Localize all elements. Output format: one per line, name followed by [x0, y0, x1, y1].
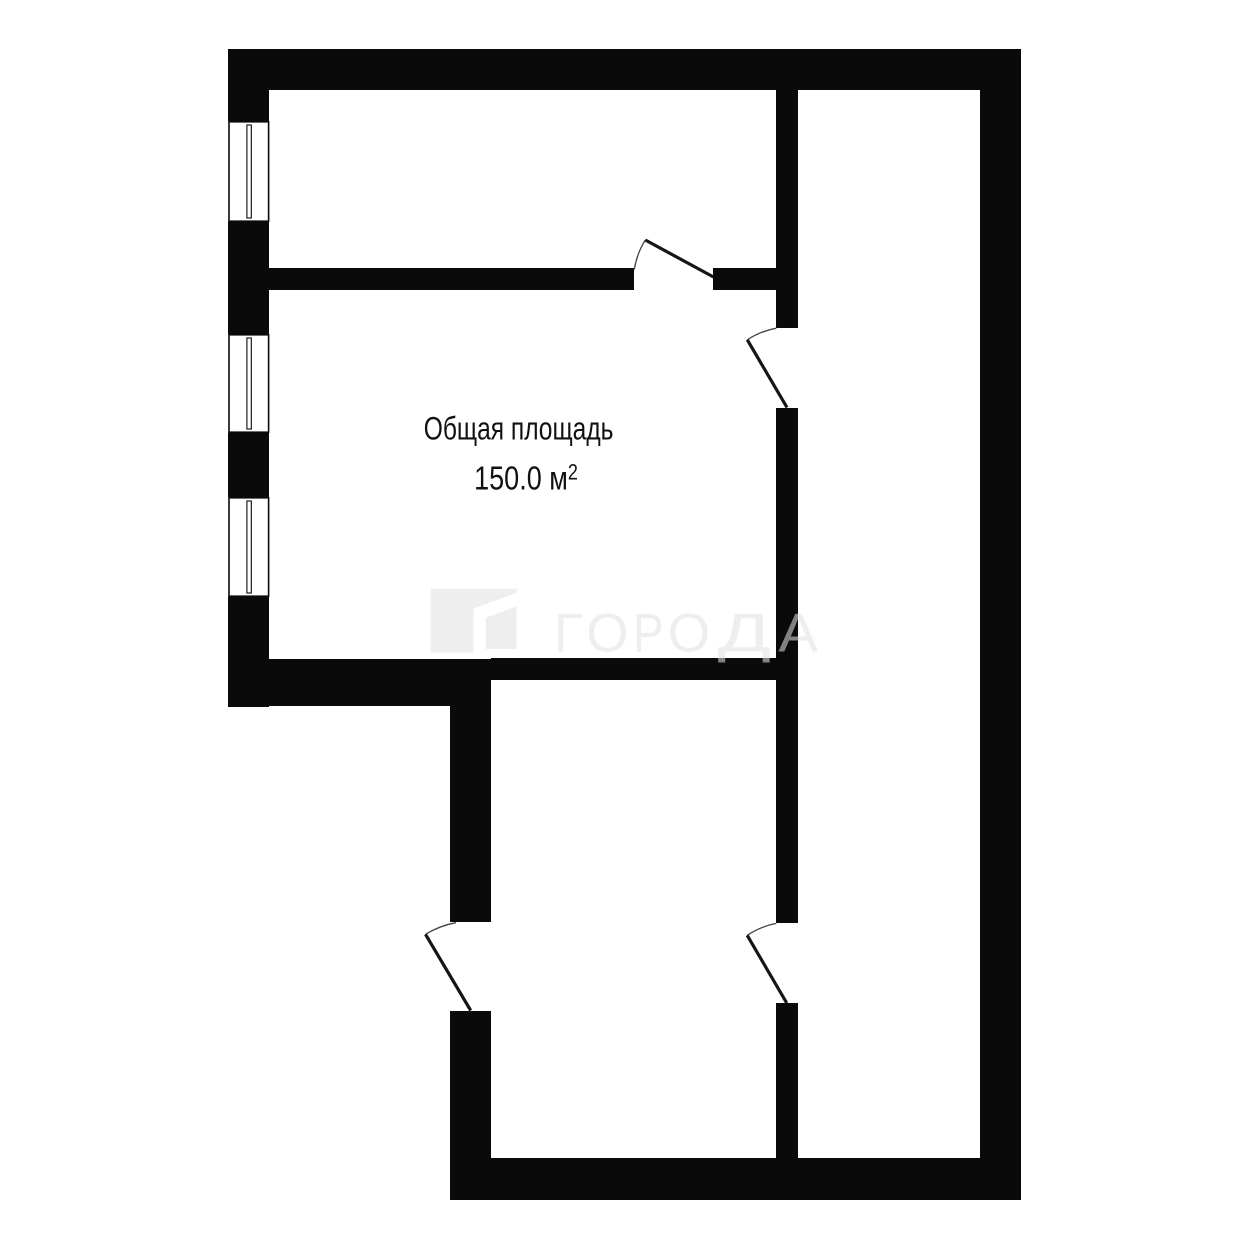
svg-text:150.0 м2: 150.0 м2 [474, 461, 578, 497]
svg-text:Общая площадь: Общая площадь [424, 411, 614, 447]
svg-text:Г: Г [554, 602, 584, 663]
svg-text:А: А [778, 603, 819, 664]
svg-text:О: О [586, 602, 628, 663]
svg-text:Р: Р [633, 602, 664, 664]
svg-text:Д: Д [718, 603, 772, 663]
svg-text:О: О [668, 602, 710, 663]
